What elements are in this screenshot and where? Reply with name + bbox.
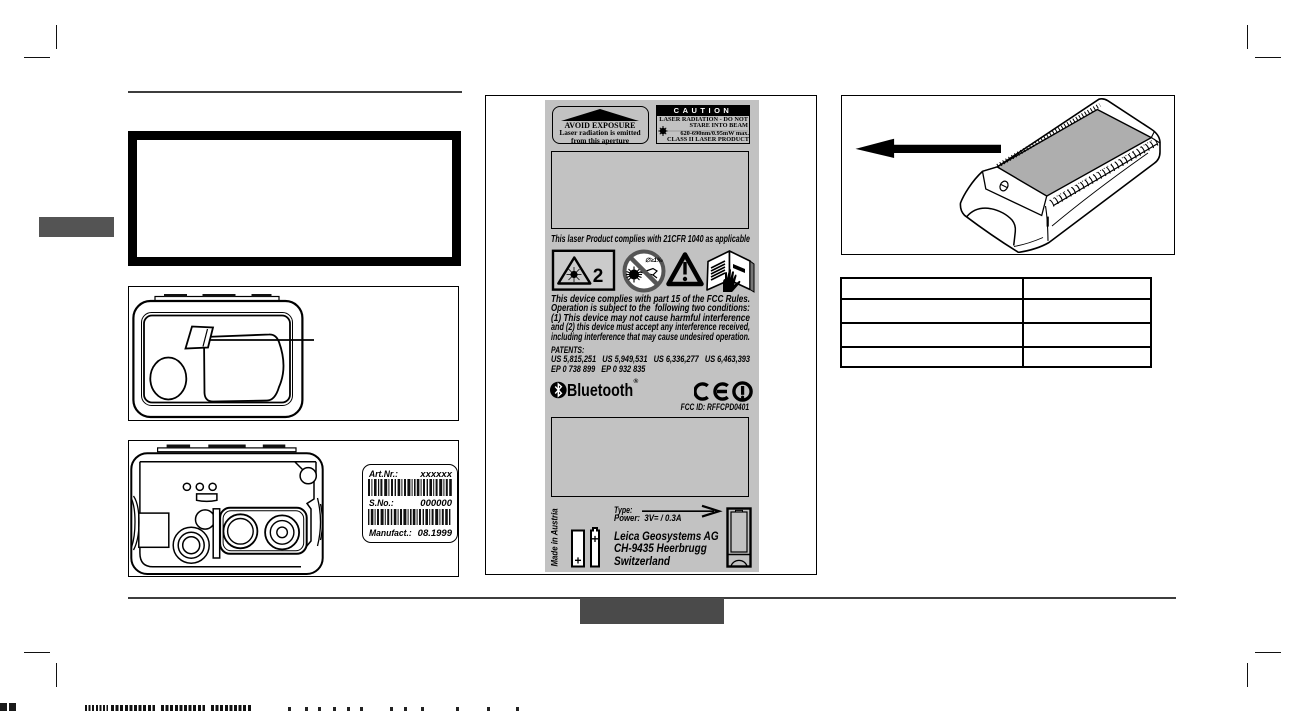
svg-text:+: + [591,532,598,546]
svg-text:2: 2 [592,266,603,287]
svg-text:∅≥1‰: ∅≥1‰ [645,257,663,264]
svg-text:+: + [574,553,581,567]
